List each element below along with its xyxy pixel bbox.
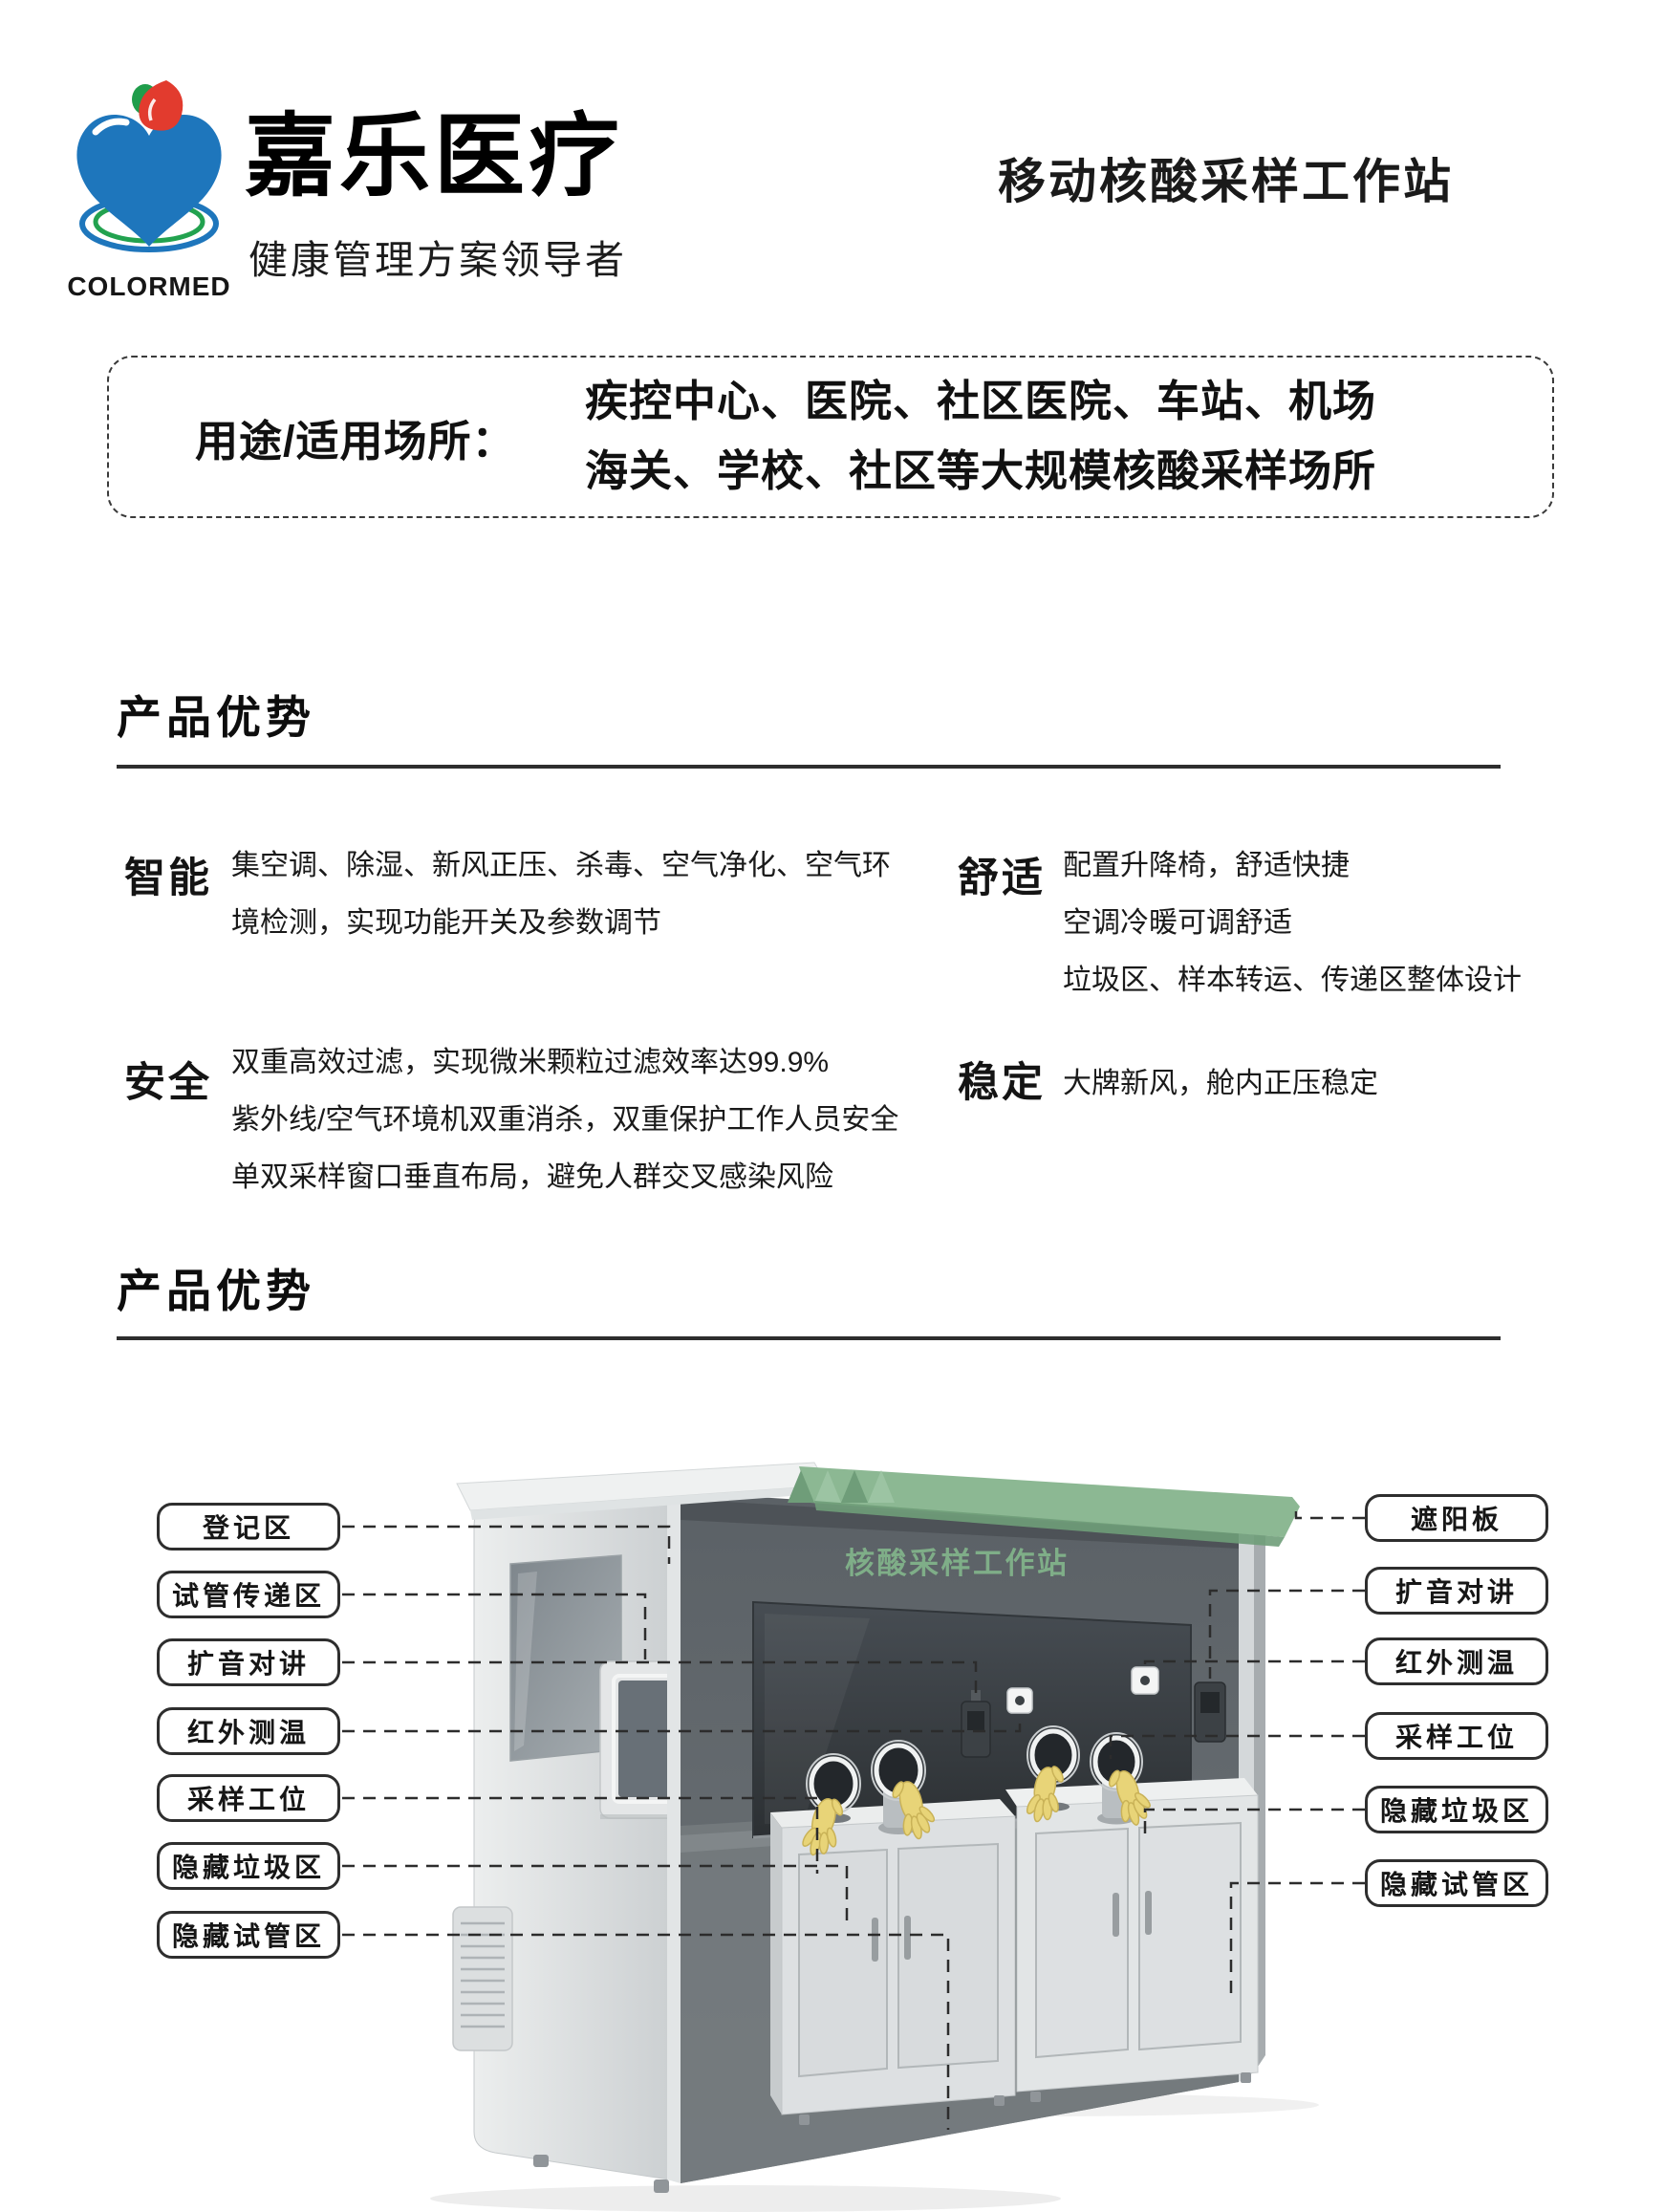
- company-slogan: 健康管理方案领导者: [249, 228, 627, 285]
- booth-front-pillar: [667, 1491, 681, 2183]
- usage-box: 用途/适用场所： 疾控中心、医院、社区医院、车站、机场 海关、学校、社区等大规模…: [107, 356, 1554, 518]
- flyer-page: COLORMED 嘉乐医疗 健康管理方案领导者 移动核酸采样工作站 用途/适用场…: [0, 0, 1664, 2212]
- feature-desc-stable: 大牌新风，舱内正压稳定: [1063, 1055, 1560, 1113]
- cabinet-right: [1005, 1778, 1258, 2092]
- tag-infrared-temp-right: 红外测温: [1365, 1637, 1548, 1685]
- usage-line-1: 疾控中心、医院、社区医院、车站、机场: [585, 367, 1376, 437]
- ground-shadow: [430, 2185, 1061, 2212]
- feature-desc-comfort: 配置升降椅，舒适快捷 空调冷暖可调舒适 垃圾区、样本转运、传递区整体设计: [1063, 837, 1541, 1009]
- brand-name: COLORMED: [57, 271, 241, 302]
- colormed-heart-logo-icon: [67, 78, 231, 270]
- usage-content: 疾控中心、医院、社区医院、车站、机场 海关、学校、社区等大规模核酸采样场所: [585, 367, 1376, 507]
- feature-name-comfort: 舒适: [958, 845, 1046, 904]
- tag-sampling-station-right: 采样工位: [1365, 1712, 1548, 1760]
- tag-intercom-left: 扩音对讲: [157, 1638, 340, 1686]
- ac-unit: [453, 1907, 512, 2050]
- feature-name-stable: 稳定: [958, 1050, 1046, 1109]
- intercom-device-right: [1195, 1682, 1225, 1742]
- feature-name-safety: 安全: [124, 1050, 212, 1109]
- tag-hidden-trash-right: 隐藏垃圾区: [1365, 1786, 1548, 1833]
- tag-sampling-station-left: 采样工位: [157, 1774, 340, 1822]
- tag-tube-transfer-area: 试管传递区: [157, 1571, 340, 1618]
- feature-desc-smart: 集空调、除湿、新风正压、杀毒、空气净化、空气环 境检测，实现功能开关及参数调节: [231, 837, 919, 952]
- product-title: 移动核酸采样工作站: [998, 143, 1454, 212]
- feature-desc-safety: 双重高效过滤，实现微米颗粒过滤效率达99.9% 紫外线/空气环境机双重消杀，双重…: [231, 1034, 939, 1206]
- feature-name-smart: 智能: [124, 845, 212, 904]
- tag-intercom-right: 扩音对讲: [1365, 1567, 1548, 1615]
- section-divider-1: [117, 765, 1501, 769]
- section-title-advantages-2: 产品优势: [117, 1254, 315, 1320]
- temp-sensor-left: [1007, 1688, 1032, 1713]
- tag-hidden-tube-left: 隐藏试管区: [157, 1911, 340, 1959]
- tag-sunshade: 遮阳板: [1365, 1494, 1548, 1542]
- usage-label: 用途/适用场所：: [195, 406, 585, 468]
- tag-infrared-temp-left: 红外测温: [157, 1707, 340, 1755]
- tag-registration-area: 登记区: [157, 1503, 340, 1551]
- section-divider-2: [117, 1336, 1501, 1340]
- company-name: 嘉乐医疗: [245, 107, 623, 207]
- tag-hidden-trash-left: 隐藏垃圾区: [157, 1842, 340, 1890]
- booth-diagram: 核酸采样工作站: [0, 1386, 1664, 2212]
- section-title-advantages-1: 产品优势: [117, 681, 315, 747]
- tag-hidden-tube-right: 隐藏试管区: [1365, 1859, 1548, 1907]
- temp-sensor-right: [1132, 1667, 1158, 1694]
- booth-title-text: 核酸采样工作站: [845, 1547, 1070, 1580]
- usage-line-2: 海关、学校、社区等大规模核酸采样场所: [585, 437, 1376, 507]
